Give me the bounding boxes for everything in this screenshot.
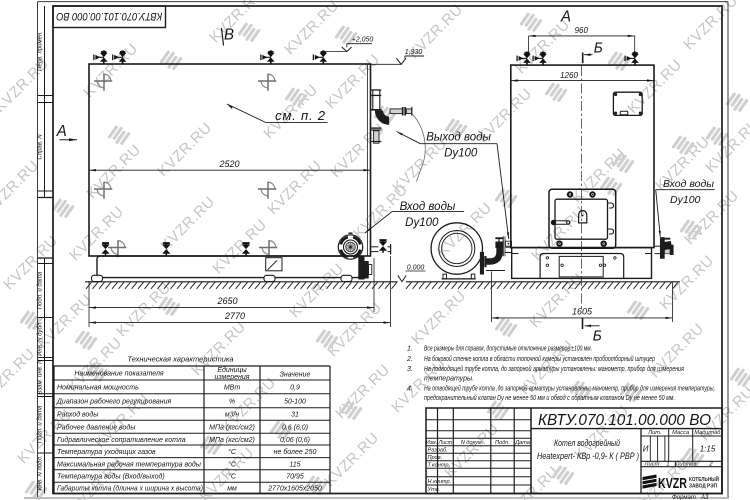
svg-text:Подп. и дата: Подп. и дата bbox=[38, 271, 44, 309]
svg-text:%: % bbox=[229, 398, 235, 405]
svg-text:предохранительный клапан Dу н: предохранительный клапан Dу не менее 50 … bbox=[424, 394, 675, 402]
svg-text:2770: 2770 bbox=[224, 311, 245, 321]
svg-text:Котел водогрейный: Котел водогрейный bbox=[554, 438, 620, 448]
svg-text:Значение: Значение bbox=[280, 372, 311, 379]
svg-text:Пров.: Пров. bbox=[428, 455, 443, 461]
svg-text:Габариты котла (длинна х ширин: Габариты котла (длинна х ширина х высота… bbox=[57, 485, 203, 493]
svg-text:1260: 1260 bbox=[560, 71, 578, 80]
svg-text:Все размеры для справок, допус: Все размеры для справок, допустимые откл… bbox=[424, 345, 592, 353]
svg-text:м3/ч: м3/ч bbox=[225, 412, 240, 419]
svg-text:температуры.: температуры. bbox=[424, 376, 474, 383]
svg-text:31: 31 bbox=[291, 412, 299, 419]
svg-text:КВТУ.070.101.00.000 ВО: КВТУ.070.101.00.000 ВО bbox=[56, 10, 162, 22]
svg-text:0,06 (0,6): 0,06 (0,6) bbox=[280, 437, 310, 444]
svg-text:Рабочее давление воды: Рабочее давление воды bbox=[57, 423, 136, 431]
svg-text:На подводящей трубе котла, д: На подводящей трубе котла, до запорной а… bbox=[424, 365, 684, 373]
svg-text:Масштаб: Масштаб bbox=[694, 430, 721, 436]
svg-text:Температура воды (Вход/выход): Температура воды (Вход/выход) bbox=[57, 473, 165, 481]
svg-text:Формат: Формат bbox=[672, 495, 696, 500]
svg-text:Масса: Масса bbox=[672, 430, 690, 436]
svg-text:1605: 1605 bbox=[572, 307, 593, 317]
svg-text:Вход воды: Вход воды bbox=[400, 201, 456, 213]
svg-text:4.: 4. bbox=[407, 386, 413, 393]
svg-text:Единицы: Единицы bbox=[217, 366, 247, 374]
svg-text:2650: 2650 bbox=[216, 296, 237, 306]
svg-text:Подп.: Подп. bbox=[495, 440, 510, 446]
svg-text:см. п. 2: см. п. 2 bbox=[275, 108, 326, 123]
svg-text:Максимальная рабочая температу: Максимальная рабочая температура воды bbox=[57, 460, 202, 468]
svg-text:2520: 2520 bbox=[218, 159, 239, 169]
svg-text:Инв. N подл.: Инв. N подл. bbox=[38, 455, 44, 490]
svg-text:Выход воды: Выход воды bbox=[426, 132, 491, 144]
svg-text:Диапазон рабочего регулировани: Диапазон рабочего регулирования bbox=[56, 397, 172, 405]
svg-text:Н.контр.: Н.контр. bbox=[428, 479, 452, 485]
svg-text:Лист: Лист bbox=[644, 462, 660, 468]
svg-text:Heatexpert- КВр -0,9- К ( РВР: Heatexpert- КВр -0,9- К ( РВР ) bbox=[537, 451, 639, 461]
svg-text:KVZR: KVZR bbox=[658, 476, 687, 492]
svg-text:0,6 (6,0): 0,6 (6,0) bbox=[282, 424, 308, 431]
svg-text:А: А bbox=[56, 123, 67, 140]
svg-text:На боковой стенке котла в обла: На боковой стенке котла в области топочн… bbox=[424, 355, 655, 363]
svg-text:Лит.: Лит. bbox=[647, 430, 662, 436]
svg-text:Dy100: Dy100 bbox=[670, 194, 701, 206]
svg-text:N докум.: N докум. bbox=[461, 440, 484, 446]
svg-text:Б: Б bbox=[594, 39, 603, 56]
svg-text:МВт: МВт bbox=[224, 384, 241, 391]
svg-text:измерения: измерения bbox=[214, 374, 249, 381]
svg-text:Взам. инв. N: Взам. инв. N bbox=[38, 359, 44, 395]
svg-text:КОТЕЛЬНЫЙ: КОТЕЛЬНЫЙ bbox=[689, 475, 719, 483]
svg-text:Подп. и дата: Подп. и дата bbox=[38, 405, 44, 443]
svg-text:Т.контр.: Т.контр. bbox=[428, 463, 451, 469]
svg-text:50-100: 50-100 bbox=[284, 398, 306, 405]
svg-text:Расход воды: Расход воды bbox=[57, 411, 99, 419]
svg-text:Номинальная мощность: Номинальная мощность bbox=[57, 384, 139, 391]
svg-text:°С: °С bbox=[228, 448, 237, 456]
svg-text:Вход воды: Вход воды bbox=[663, 178, 714, 190]
svg-text:Dy100: Dy100 bbox=[405, 217, 439, 229]
svg-text:°С: °С bbox=[228, 460, 237, 468]
svg-text:Перв. примен.: Перв. примен. bbox=[38, 31, 44, 71]
svg-text:Техническая характеристика: Техническая характеристика bbox=[127, 355, 233, 364]
svg-text:2.: 2. bbox=[406, 356, 413, 363]
svg-text:мм: мм bbox=[227, 486, 237, 493]
svg-text:1: 1 bbox=[666, 462, 669, 468]
svg-text:Температура уходящих газов: Температура уходящих газов bbox=[57, 448, 156, 456]
svg-text:Дата: Дата bbox=[514, 440, 530, 446]
svg-text:+2,050: +2,050 bbox=[352, 36, 374, 43]
svg-text:Наименование показателя: Наименование показателя bbox=[74, 371, 164, 378]
svg-text:2770х1605х2050: 2770х1605х2050 bbox=[267, 486, 322, 493]
svg-text:И: И bbox=[643, 445, 649, 454]
svg-text:960: 960 bbox=[575, 26, 589, 35]
svg-text:1:15: 1:15 bbox=[700, 445, 716, 454]
svg-text:КВТУ.070.101.00.000 ВО: КВТУ.070.101.00.000 ВО bbox=[538, 412, 711, 429]
svg-text:3.: 3. bbox=[407, 366, 413, 373]
svg-text:1,930: 1,930 bbox=[405, 49, 423, 56]
svg-text:Лист: Лист bbox=[438, 440, 453, 446]
svg-text:ЗАВОД РЭП: ЗАВОД РЭП bbox=[689, 484, 717, 490]
svg-text:1.: 1. bbox=[407, 346, 413, 353]
svg-text:МПа (кгс/см2): МПа (кгс/см2) bbox=[209, 424, 255, 431]
svg-text:0.000: 0.000 bbox=[407, 264, 425, 271]
svg-text:Инв. N дубл.: Инв. N дубл. bbox=[38, 321, 44, 356]
svg-text:А: А bbox=[560, 9, 571, 26]
svg-text:Листов: Листов bbox=[674, 462, 696, 468]
svg-text:Гидравлическое сопративление к: Гидравлическое сопративление котла bbox=[57, 436, 186, 444]
svg-text:В: В bbox=[224, 27, 234, 44]
svg-text:°С: °С bbox=[228, 473, 237, 481]
svg-text:не более 250: не более 250 bbox=[274, 448, 317, 456]
svg-text:Изм.: Изм. bbox=[426, 440, 437, 446]
svg-text:115: 115 bbox=[289, 461, 300, 468]
svg-text:Dy100: Dy100 bbox=[444, 148, 478, 160]
svg-text:Справ. N: Справ. N bbox=[38, 134, 44, 160]
svg-text:0,9: 0,9 bbox=[290, 384, 300, 391]
svg-text:А3: А3 bbox=[700, 495, 709, 500]
svg-text:70/95: 70/95 bbox=[286, 474, 304, 481]
svg-text:Утв.: Утв. bbox=[427, 487, 441, 493]
svg-text:Б: Б bbox=[593, 327, 602, 344]
svg-text:Разраб.: Разраб. bbox=[428, 448, 448, 454]
svg-text:МПа (кгс/см2): МПа (кгс/см2) bbox=[209, 437, 255, 444]
svg-text:На отводящей трубе котла ,до з: На отводящей трубе котла ,до запорной ар… bbox=[424, 385, 715, 393]
